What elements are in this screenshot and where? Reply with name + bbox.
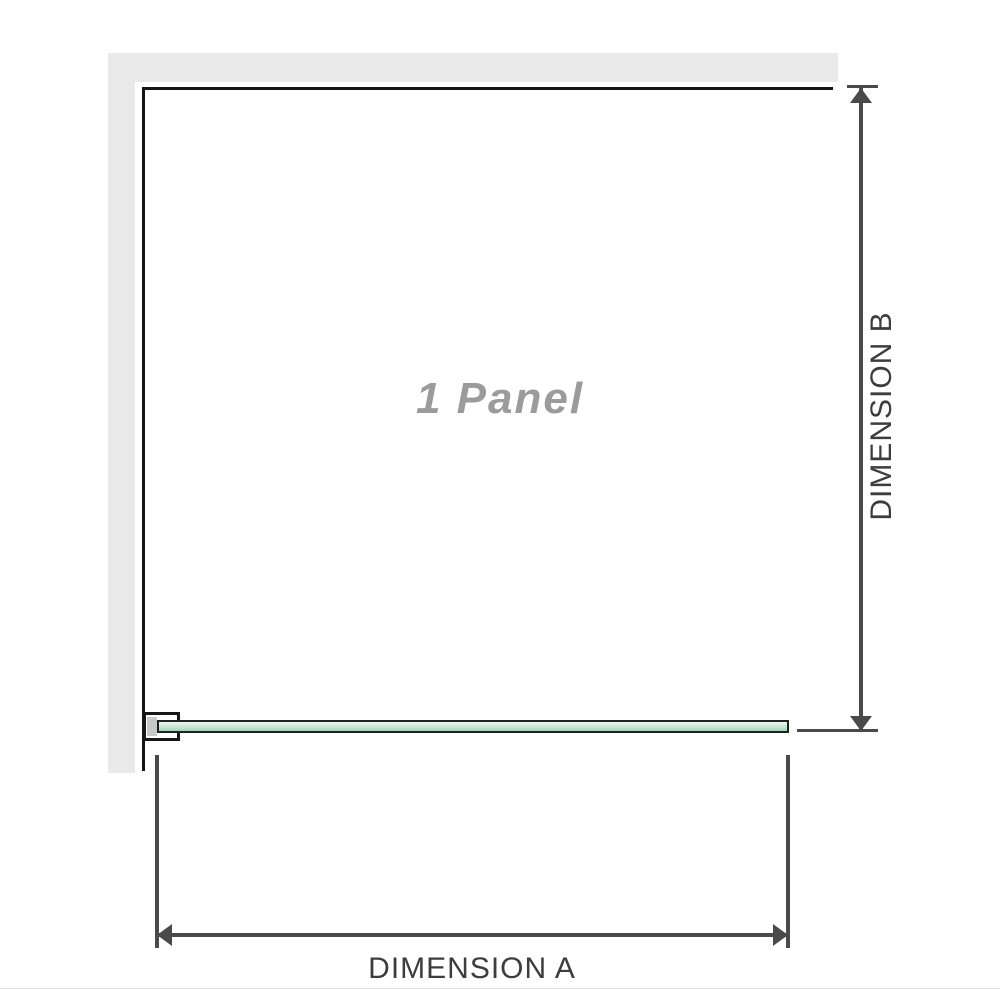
arrow-left-icon xyxy=(157,924,172,946)
arrow-right-icon xyxy=(773,924,788,946)
dimension-a-line xyxy=(157,933,788,937)
panel-outline-top xyxy=(142,87,833,90)
panel-outline-left xyxy=(142,87,145,771)
wall-segment-top xyxy=(108,53,838,82)
dimension-b-label: DIMENSION B xyxy=(865,311,899,520)
panel-label: 1 Panel xyxy=(416,374,584,424)
glass-panel-bar xyxy=(157,720,789,733)
dimension-a-extension-left xyxy=(155,755,159,948)
wall-segment-left xyxy=(108,53,135,773)
page-edge-line xyxy=(0,988,1000,989)
dimension-b-line xyxy=(859,88,863,731)
wall-bracket-pad xyxy=(147,717,157,736)
arrow-down-icon xyxy=(850,716,872,731)
panel-dimension-diagram: 1 Panel DIMENSION B DIMENSION A xyxy=(0,0,1000,1000)
dimension-a-label: DIMENSION A xyxy=(368,952,576,986)
arrow-up-icon xyxy=(850,88,872,103)
dimension-a-extension-right xyxy=(786,755,790,948)
